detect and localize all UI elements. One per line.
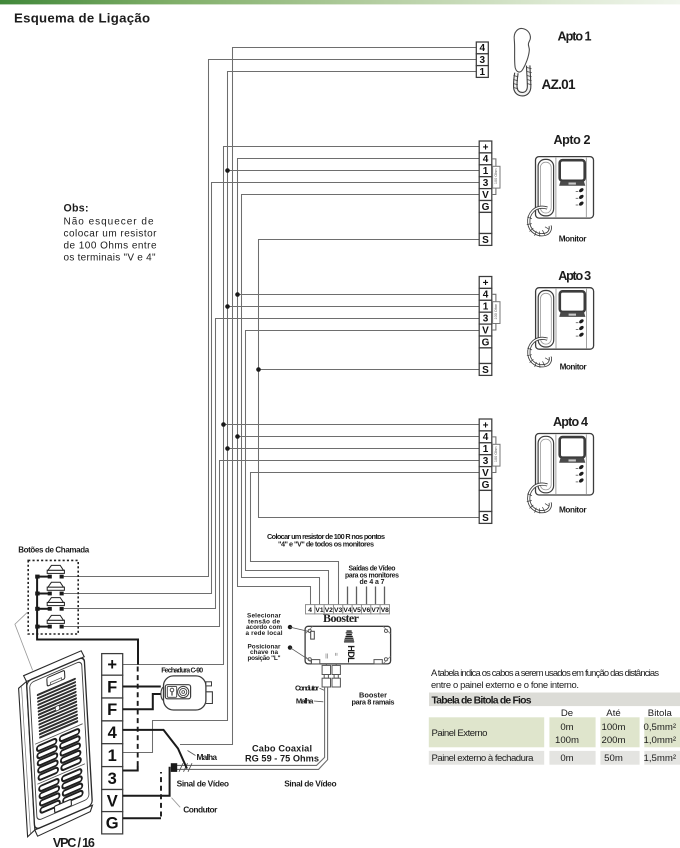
svg-text:1: 1 <box>483 302 489 313</box>
svg-text:G: G <box>482 480 490 491</box>
svg-text:0m: 0m <box>560 753 573 764</box>
svg-text:HDL: HDL <box>346 645 356 663</box>
svg-text:3: 3 <box>480 55 486 66</box>
svg-text:Painel externo à fechadura: Painel externo à fechadura <box>432 753 535 764</box>
svg-text:1: 1 <box>483 166 489 177</box>
svg-text:"4" e "V" de todos os monitore: "4" e "V" de todos os monitores <box>278 540 374 549</box>
svg-text:V8: V8 <box>381 607 389 614</box>
svg-text:V: V <box>482 190 489 201</box>
svg-text:Apto 4: Apto 4 <box>553 415 588 429</box>
svg-text:A tabela indica os cabos a ser: A tabela indica os cabos a serem usados … <box>431 667 659 678</box>
svg-text:G: G <box>482 337 490 348</box>
svg-text:para 8 ramais: para 8 ramais <box>352 698 395 707</box>
svg-text:RG 59 - 75 Ohms: RG 59 - 75 Ohms <box>245 753 319 763</box>
svg-text:4: 4 <box>108 724 118 742</box>
svg-text:Esquema de Ligação: Esquema de Ligação <box>14 10 150 25</box>
svg-text:Obs:: Obs: <box>64 203 89 215</box>
svg-text:de 100 Ohms entre: de 100 Ohms entre <box>64 241 157 252</box>
svg-text:os terminais "V e 4": os terminais "V e 4" <box>64 253 156 264</box>
svg-text:AZ.01: AZ.01 <box>542 77 576 92</box>
svg-text:Malha: Malha <box>296 696 314 705</box>
svg-text:100m: 100m <box>555 735 579 746</box>
svg-text:Sinal de Vídeo: Sinal de Vídeo <box>284 778 336 788</box>
svg-text:4: 4 <box>480 43 486 54</box>
svg-text:100 Ohm: 100 Ohm <box>494 446 498 462</box>
svg-text:1,5mm²: 1,5mm² <box>644 753 677 764</box>
svg-text:a rede local: a rede local <box>246 630 283 637</box>
svg-text:F: F <box>107 678 117 696</box>
svg-text:De: De <box>561 708 573 719</box>
svg-text:3: 3 <box>108 770 117 788</box>
svg-text:G: G <box>482 202 490 213</box>
svg-text:colocar um resistor: colocar um resistor <box>64 229 158 240</box>
svg-text:4: 4 <box>483 290 489 301</box>
svg-text:VPC / 16: VPC / 16 <box>53 836 95 848</box>
svg-text:Apto 3: Apto 3 <box>558 269 591 283</box>
svg-text:V6: V6 <box>362 607 370 614</box>
svg-text:0,5mm²: 0,5mm² <box>644 722 677 733</box>
svg-text:Painel Externo: Painel Externo <box>432 728 488 739</box>
svg-text:3: 3 <box>483 178 489 189</box>
svg-text:V: V <box>482 468 489 479</box>
svg-text:S: S <box>482 235 489 246</box>
svg-text:Monitor: Monitor <box>559 235 588 244</box>
svg-text:+: + <box>483 278 489 289</box>
svg-text:Booster: Booster <box>323 611 360 625</box>
svg-text:4: 4 <box>308 607 312 614</box>
svg-text:Até: Até <box>606 708 620 719</box>
svg-text:3: 3 <box>483 456 489 467</box>
svg-text:3: 3 <box>483 314 489 325</box>
svg-text:V: V <box>107 792 118 810</box>
svg-text:posição "L": posição "L" <box>248 655 281 662</box>
svg-text:200m: 200m <box>602 735 626 746</box>
svg-text:entre o painel externo e o fon: entre o painel externo e o fone interno. <box>431 679 579 690</box>
svg-text:S: S <box>482 513 489 524</box>
svg-text:Monitor: Monitor <box>559 506 587 515</box>
svg-text:Apto 1: Apto 1 <box>558 30 592 44</box>
svg-text:Apto 2: Apto 2 <box>554 133 591 147</box>
svg-text:100 Ohm: 100 Ohm <box>494 304 498 320</box>
svg-text:1: 1 <box>480 67 486 78</box>
svg-text:0m: 0m <box>560 722 573 733</box>
svg-text:S: S <box>482 365 489 376</box>
svg-text:Cabo Coaxial: Cabo Coaxial <box>252 744 312 754</box>
svg-text:50m: 50m <box>604 753 623 764</box>
svg-text:1: 1 <box>483 444 489 455</box>
svg-text:+: + <box>483 142 489 153</box>
svg-text:F: F <box>107 701 117 719</box>
svg-text:4: 4 <box>483 432 489 443</box>
svg-text:1: 1 <box>108 747 117 765</box>
svg-text:4: 4 <box>483 154 489 165</box>
svg-text:V7: V7 <box>371 607 379 614</box>
svg-text:Condutor: Condutor <box>183 805 218 815</box>
svg-text:1,0mm²: 1,0mm² <box>644 735 677 746</box>
svg-text:Monitor: Monitor <box>560 363 588 372</box>
svg-text:Malha: Malha <box>197 752 218 762</box>
svg-text:V: V <box>482 325 489 336</box>
svg-text:100m: 100m <box>602 722 626 733</box>
svg-text:+: + <box>483 420 489 431</box>
svg-text:100 Ohm: 100 Ohm <box>494 168 498 184</box>
svg-text:Não esquecer de: Não esquecer de <box>64 217 154 228</box>
svg-text:G: G <box>106 815 119 833</box>
svg-text:Bitola: Bitola <box>648 708 673 719</box>
svg-text:Sinal de Vídeo: Sinal de Vídeo <box>177 778 229 788</box>
svg-text:de 4 a 7: de 4 a 7 <box>360 579 385 586</box>
svg-text:Tabela de Bitola de Fios: Tabela de Bitola de Fios <box>432 696 532 707</box>
svg-text:+: + <box>107 656 117 674</box>
svg-text:Fechadura C-90: Fechadura C-90 <box>161 668 203 675</box>
svg-text:Condutor: Condutor <box>295 683 319 692</box>
svg-text:Botões de Chamada: Botões de Chamada <box>18 546 90 555</box>
